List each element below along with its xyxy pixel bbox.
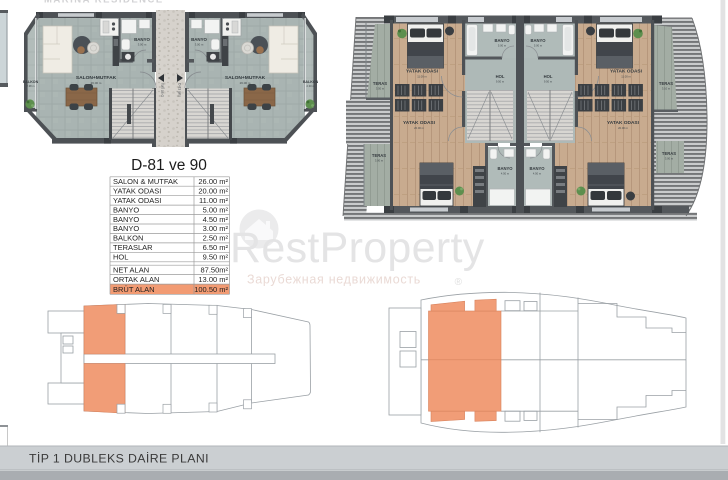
svg-text:BANYO: BANYO bbox=[134, 37, 150, 42]
svg-text:5.00 m²: 5.00 m² bbox=[203, 205, 229, 214]
svg-text:Зарубежная недвижимость: Зарубежная недвижимость bbox=[247, 273, 421, 287]
svg-text:11.00 m: 11.00 m bbox=[417, 75, 427, 79]
svg-text:4.50 m: 4.50 m bbox=[533, 172, 542, 176]
svg-text:20.00 m²: 20.00 m² bbox=[198, 186, 228, 195]
svg-text:YATAK ODASI: YATAK ODASI bbox=[403, 120, 436, 126]
svg-text:4.50 m: 4.50 m bbox=[501, 172, 510, 176]
svg-text:3.00 m: 3.00 m bbox=[195, 43, 204, 47]
svg-text:YATAK ODASI: YATAK ODASI bbox=[406, 69, 439, 75]
svg-text:4.50 m²: 4.50 m² bbox=[203, 215, 229, 224]
svg-text:TERAS: TERAS bbox=[662, 151, 676, 156]
svg-text:9.50 m: 9.50 m bbox=[496, 80, 505, 84]
svg-text:5.00 m: 5.00 m bbox=[498, 44, 507, 48]
svg-text:20.00 m: 20.00 m bbox=[414, 126, 424, 130]
svg-text:3.00 m: 3.00 m bbox=[375, 159, 384, 163]
svg-text:®: ® bbox=[455, 277, 463, 288]
svg-text:87.50m²: 87.50m² bbox=[200, 265, 228, 274]
svg-text:BANYO: BANYO bbox=[529, 166, 545, 171]
svg-text:BANYO: BANYO bbox=[113, 224, 139, 233]
svg-text:YATAK ODASI: YATAK ODASI bbox=[113, 196, 161, 205]
svg-text:D-81 ve 90: D-81 ve 90 bbox=[131, 157, 207, 174]
svg-text:HOL: HOL bbox=[496, 74, 505, 79]
svg-text:BANYO: BANYO bbox=[530, 38, 546, 43]
svg-text:TERASLAR: TERASLAR bbox=[113, 243, 153, 252]
svg-text:BANYO: BANYO bbox=[497, 166, 513, 171]
svg-text:11.00 m: 11.00 m bbox=[621, 75, 631, 79]
svg-text:20.00 m: 20.00 m bbox=[618, 126, 628, 130]
svg-text:2.50 m²: 2.50 m² bbox=[203, 234, 229, 243]
svg-text:BRÜT ALAN: BRÜT ALAN bbox=[113, 285, 155, 294]
svg-text:TERAS: TERAS bbox=[659, 81, 673, 86]
svg-text:BALKON: BALKON bbox=[303, 80, 319, 84]
svg-text:2.38 m: 2.38 m bbox=[27, 84, 35, 88]
svg-text:BANYO: BANYO bbox=[113, 205, 139, 214]
svg-text:100.50 m²: 100.50 m² bbox=[194, 285, 228, 294]
svg-text:3.50 m: 3.50 m bbox=[376, 87, 385, 91]
svg-text:YATAK ODASI: YATAK ODASI bbox=[607, 120, 640, 126]
svg-text:BANYO: BANYO bbox=[113, 215, 139, 224]
svg-text:26.00 m²: 26.00 m² bbox=[198, 177, 228, 186]
svg-text:26.00 m: 26.00 m bbox=[91, 81, 102, 85]
svg-text:ORTAK ALAN: ORTAK ALAN bbox=[113, 275, 159, 284]
svg-text:13.00 m²: 13.00 m² bbox=[198, 275, 228, 284]
svg-text:TİP 1 DUBLEKS DAİRE PLANI: TİP 1 DUBLEKS DAİRE PLANI bbox=[29, 452, 209, 466]
svg-text:YATAK ODASI: YATAK ODASI bbox=[113, 186, 161, 195]
svg-text:D-81 giriş: D-81 giriş bbox=[178, 83, 182, 97]
svg-text:5.00 m: 5.00 m bbox=[534, 44, 543, 48]
svg-text:3.10 m: 3.10 m bbox=[662, 87, 671, 91]
svg-text:2.30 m: 2.30 m bbox=[307, 84, 315, 88]
svg-text:3.00 m: 3.00 m bbox=[138, 43, 147, 47]
svg-text:D-90 giriş: D-90 giriş bbox=[161, 83, 165, 97]
svg-text:BANYO: BANYO bbox=[191, 37, 207, 42]
svg-text:11.00 m²: 11.00 m² bbox=[199, 196, 229, 205]
svg-text:RestProperty: RestProperty bbox=[230, 224, 485, 272]
svg-text:6.50 m²: 6.50 m² bbox=[203, 243, 229, 252]
svg-text:TERAS: TERAS bbox=[373, 81, 387, 86]
svg-text:3.00 m: 3.00 m bbox=[665, 157, 674, 161]
svg-text:3.00 m²: 3.00 m² bbox=[203, 224, 229, 233]
svg-text:HOL: HOL bbox=[113, 253, 128, 262]
svg-text:9.50 m: 9.50 m bbox=[544, 80, 553, 84]
svg-text:9.50 m²: 9.50 m² bbox=[203, 253, 229, 262]
svg-text:YATAK ODASI: YATAK ODASI bbox=[610, 69, 643, 75]
svg-text:HOL: HOL bbox=[544, 74, 553, 79]
svg-text:BALKON: BALKON bbox=[23, 80, 39, 84]
svg-text:BANYO: BANYO bbox=[494, 38, 510, 43]
svg-text:TERAS: TERAS bbox=[372, 153, 386, 158]
svg-text:SALON & MUTFAK: SALON & MUTFAK bbox=[113, 177, 178, 186]
svg-text:MARINA RESIDENCE: MARINA RESIDENCE bbox=[44, 0, 164, 6]
svg-text:NET ALAN: NET ALAN bbox=[113, 265, 149, 274]
svg-text:BALKON: BALKON bbox=[113, 234, 143, 243]
